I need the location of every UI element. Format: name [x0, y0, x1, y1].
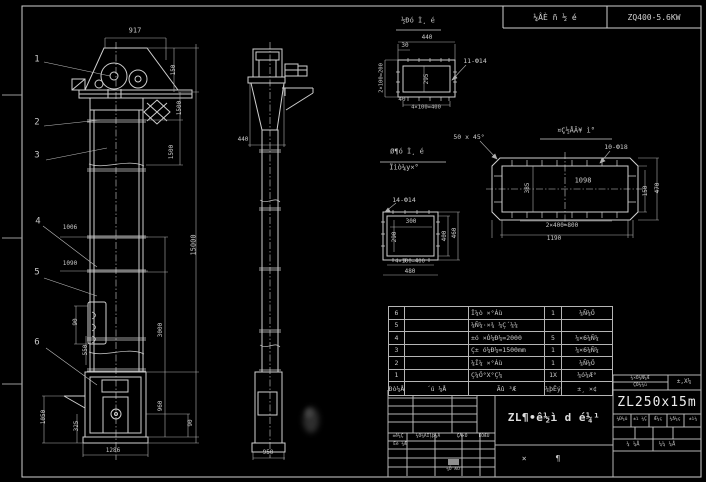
drawing-model-number: ZL250x15m — [614, 391, 700, 413]
dim-1286: 1286 — [106, 448, 120, 454]
dim-1050: 1050 — [41, 410, 47, 424]
dim-550: 550 — [83, 345, 89, 356]
tb-assembly: × ¶ — [522, 455, 561, 463]
tb-cell-top-3: ±,X¼ — [677, 379, 691, 385]
tb-rev-2: ¼Ö¼ÄÎļþ¼Å — [416, 435, 440, 440]
dim-90-door: 90 — [73, 318, 79, 325]
bom-cell: 1 — [544, 307, 561, 319]
dim-4x100-b: 4×100=400 — [395, 259, 425, 265]
inlet-flange-detail — [486, 139, 644, 226]
note-10-holes: 10-Ф18 — [604, 144, 627, 151]
note-11-holes: 11-Ф14 — [463, 58, 486, 65]
bom-cell: ¼Î¼ ×°Áù — [468, 357, 544, 369]
dim-1090: 1090 — [63, 261, 77, 267]
bom-cell — [404, 345, 468, 357]
dim-460: 460 — [452, 228, 458, 239]
bom-cell: ´ú ¼Å — [404, 382, 468, 395]
left-elevation-view — [64, 42, 192, 460]
dim-30: 30 — [401, 43, 408, 49]
dim-440-side: 440 — [238, 137, 249, 143]
dim-385: 385 — [525, 183, 531, 194]
bom-cell: 3 — [389, 345, 404, 357]
dim-150-inlet: 150 — [643, 186, 649, 197]
bom-cell: 2 — [389, 357, 404, 369]
bom-cell: ±¸ ×¢ — [561, 382, 612, 395]
bom-header-row: Ðò¼Å´ú ¼ÅÃû ³Æ¼þÊý±¸ ×¢ — [389, 381, 612, 395]
dim-90-boot: 90 — [188, 419, 194, 426]
bom-row: 1Ç¼Ö°X°Ç¼1X¼ó¼Æ° — [389, 369, 612, 382]
tb-sheet-no: ¼¼ ¼Å — [659, 442, 676, 448]
square-flange-detail — [380, 162, 446, 262]
tb-cell-top-1: ¼×Ö¼Ñ¼Æ — [631, 377, 650, 382]
bom-cell: Ðò¼Å — [389, 382, 404, 395]
drawing-title: ZL¶•ê½ì d é¼¹ — [497, 407, 611, 427]
side-elevation-view — [248, 42, 313, 458]
view-title-square-1: Ø¶ó Ì¸ é — [390, 149, 424, 156]
bom-cell: ¼Ñ¼Ö — [561, 307, 612, 319]
tb-small-3: Ǽ¼ç — [654, 418, 662, 423]
sheet-header-center: ¼ÂÈ ñ ½ é — [503, 6, 607, 28]
cad-drawing-sheet: ¼ÂÈ ñ ½ é ZQ400-5.6KW ZL¶•ê½ì d é¼¹ ZL25… — [0, 0, 706, 482]
bom-row: 3Ç± ó¼Ð¼=1500mm1¼×6¼Ñ¼ — [389, 344, 612, 357]
dim-2x100: 2×100=200 — [379, 63, 385, 93]
dim-15000: 15000 — [191, 234, 198, 255]
dim-300: 300 — [406, 219, 417, 225]
bom-cell: ¼Ñ¼·×¾ ¼Ç´¼¼ — [468, 320, 544, 332]
bom-row: 2¼Î¼ ×°Áù1¼Ñ¼Ö — [389, 356, 612, 369]
bom-cell — [544, 320, 561, 332]
bom-cell — [404, 320, 468, 332]
tb-small-4: ¼å¼ç — [670, 418, 681, 423]
view-title-square-2: Ïìò¼y×° — [389, 165, 419, 172]
bom-cell — [404, 370, 468, 382]
bom-cell — [404, 307, 468, 319]
bom-row: 4±ó ×Ó¼Ð¼=20005¼×6¼Ñ¼ — [389, 331, 612, 344]
ink-smudge — [303, 407, 319, 433]
note-chamfer: 50 x 45° — [453, 134, 484, 141]
bom-cell — [561, 320, 612, 332]
tb-date: ¼Õ ÆÚ — [446, 468, 460, 473]
balloon-6: 6 — [34, 339, 39, 348]
dim-950: 950 — [263, 450, 274, 456]
bom-row: 6Î¼ò ×°Áù1¼Ñ¼Ö — [389, 307, 612, 319]
dim-40: 40 — [398, 97, 405, 103]
view-title-inlet: ¤Ç½ÅÃ¥ ì° — [557, 128, 595, 135]
balloon-4: 4 — [35, 218, 40, 227]
bom-cell: ¼þÊý — [544, 382, 561, 395]
dim-325: 325 — [74, 421, 80, 432]
bom-cell: 5 — [389, 320, 404, 332]
dim-440-flange: 440 — [422, 35, 433, 41]
tb-small-2: ±ì ¼Ç — [633, 418, 647, 423]
bom-cell: ±ó ×Ó¼Ð¼=2000 — [468, 332, 544, 344]
bom-cell: 4 — [389, 332, 404, 344]
balloon-3: 3 — [34, 152, 39, 161]
note-14-holes: 14-Ф14 — [392, 197, 415, 204]
bom-cell: 1 — [389, 370, 404, 382]
dim-4x100-a: 4×100=400 — [411, 105, 441, 111]
dim-1006: 1006 — [63, 225, 77, 231]
dim-1190: 1190 — [547, 236, 561, 242]
dim-400: 400 — [442, 231, 448, 242]
sheet-header-model-code: ZQ400-5.6KW — [607, 6, 701, 28]
bom-cell: ¼×6¼Ñ¼ — [561, 332, 612, 344]
bom-cell: ¼ó¼Æ° — [561, 370, 612, 382]
side-view-dimensions — [248, 83, 286, 460]
bom-cell — [404, 357, 468, 369]
dim-290: 290 — [392, 232, 398, 243]
tb-rev-4: ÈÕÆÚ — [479, 435, 490, 440]
bom-cell: Ç¼Ö°X°Ç¼ — [468, 370, 544, 382]
dim-470: 470 — [655, 183, 661, 194]
dim-1500-b: 1500 — [169, 145, 175, 159]
tb-design: Éè ¼Æ — [393, 443, 407, 448]
balloon-5: 5 — [34, 269, 39, 278]
dim-917: 917 — [129, 28, 142, 35]
bom-cell: 1 — [544, 345, 561, 357]
dim-2x400: 2×400=800 — [546, 223, 579, 229]
dim-960: 960 — [158, 401, 164, 412]
dim-295: 295 — [424, 74, 430, 85]
bom-cell: Ç± ó¼Ð¼=1500mm — [468, 345, 544, 357]
dim-150: 150 — [171, 65, 177, 76]
bom-cell: 5 — [544, 332, 561, 344]
dim-480: 480 — [405, 269, 416, 275]
bom-cell: 6 — [389, 307, 404, 319]
bom-cell: Ãû ³Æ — [468, 382, 544, 395]
balloon-2: 2 — [34, 119, 39, 128]
bom-cell — [404, 332, 468, 344]
dim-1500-a: 1500 — [177, 101, 183, 115]
bom-cell: 1 — [544, 357, 561, 369]
tb-cell-top-2: ÇÕ¼¼ù — [633, 384, 647, 389]
bom-cell: ¼Ñ¼Ö — [561, 357, 612, 369]
tb-rev-3: ÇÅ×Ö — [457, 435, 468, 440]
tb-rev-1: ±ê¼Ç — [393, 435, 404, 440]
balloon-1: 1 — [34, 56, 39, 65]
tb-small-5: ±ì¼ — [689, 418, 697, 423]
view-title-discharge: ½Ðó Ì¸ é — [401, 18, 435, 25]
bill-of-materials: 6Î¼ò ×°Áù1¼Ñ¼Ö5¼Ñ¼·×¾ ¼Ç´¼¼4±ó ×Ó¼Ð¼=200… — [388, 306, 613, 396]
tb-sheet-total: ¼ ¼Å — [626, 442, 639, 448]
bom-cell: 1X — [544, 370, 561, 382]
bom-cell: Î¼ò ×°Áù — [468, 307, 544, 319]
tb-small-1: ¼Ð¼û — [617, 418, 628, 423]
bom-row: 5¼Ñ¼·×¾ ¼Ç´¼¼ — [389, 319, 612, 332]
dim-3000: 3000 — [158, 323, 164, 337]
dim-1098: 1098 — [575, 178, 592, 185]
bom-cell: ¼×6¼Ñ¼ — [561, 345, 612, 357]
